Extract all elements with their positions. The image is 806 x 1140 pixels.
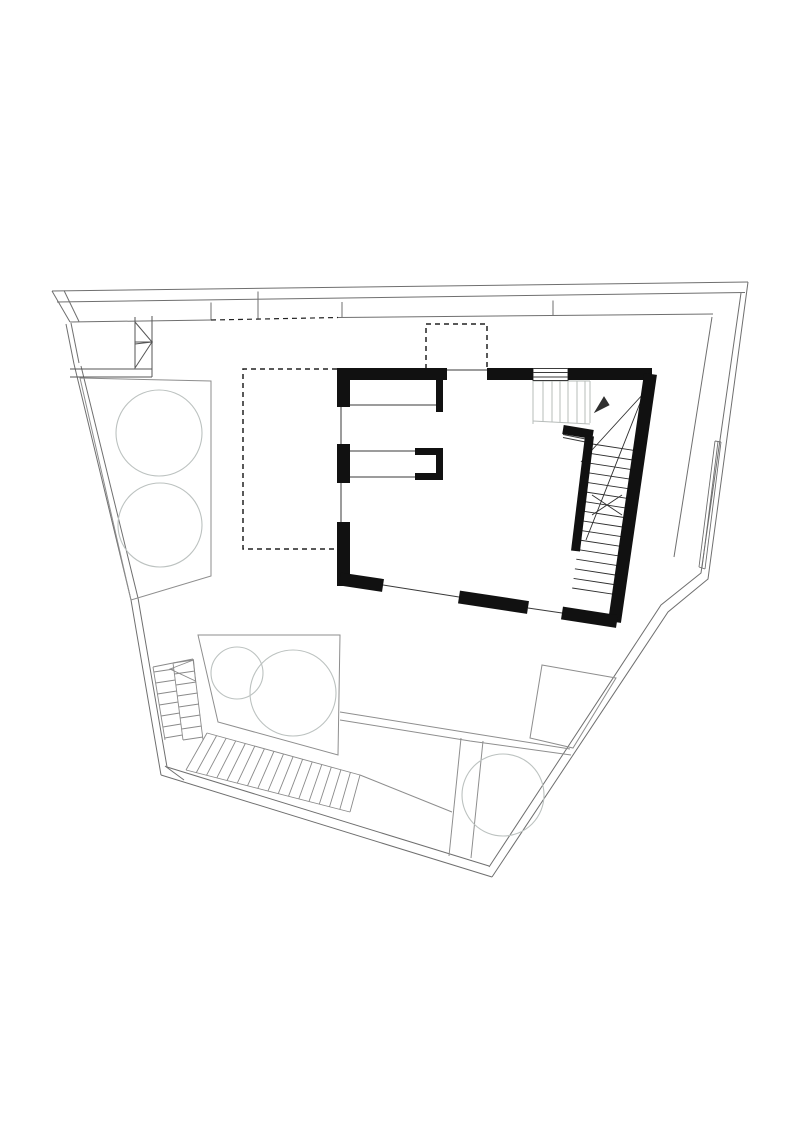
stair-direction-arrowhead xyxy=(595,397,609,412)
garden-path-edge-upper xyxy=(340,712,570,749)
canopy-outline-west xyxy=(243,369,337,549)
street-wall-cap-inner xyxy=(64,291,79,322)
exterior-stairs-9 xyxy=(159,702,178,705)
garden-path-edge-lower xyxy=(340,720,571,755)
south-window-sill-2 xyxy=(528,608,562,613)
south-window-sill-1 xyxy=(383,585,459,597)
exterior-stairs-39 xyxy=(340,772,351,809)
garden-stair-cap-left xyxy=(186,733,207,770)
canopy-outline-north xyxy=(426,324,487,369)
building-thin-lines xyxy=(341,368,593,613)
stair-main-flight-8 xyxy=(582,521,623,527)
street-wall-bottom-west xyxy=(70,320,211,322)
upper-garden-stair-cap-1 xyxy=(153,663,173,667)
south-wall-east xyxy=(562,613,617,622)
balcony-railing-2 xyxy=(705,442,721,569)
stair-main-flight-3 xyxy=(588,473,629,479)
dashed-outlines xyxy=(211,318,487,550)
exterior-stairs xyxy=(153,659,360,812)
exterior-stairs-17 xyxy=(179,704,199,707)
stair-main-flight-13 xyxy=(575,569,615,575)
south-wall-west xyxy=(340,579,383,586)
east-boundary-fence xyxy=(674,317,712,557)
exterior-stairs-11 xyxy=(163,724,181,727)
stair-main-flight-10 xyxy=(579,540,620,546)
exterior-stairs-28 xyxy=(227,744,245,781)
exterior-stairs-7 xyxy=(156,680,176,683)
tree-canopy-2 xyxy=(118,483,202,567)
gate-arrow-lower xyxy=(135,342,152,368)
terrace-pad xyxy=(530,665,616,748)
street-wall-inner xyxy=(57,293,745,303)
tree-canopy-1 xyxy=(116,390,202,476)
upper-flight-bottom xyxy=(533,421,590,424)
garage-pad xyxy=(80,378,211,600)
page xyxy=(0,0,806,1140)
exterior-stairs-37 xyxy=(319,767,331,804)
entrance-gate xyxy=(70,316,152,377)
south-wall-mid xyxy=(459,597,528,608)
exterior-stairs-15 xyxy=(176,682,196,685)
west-boundary-outer xyxy=(74,364,161,775)
stair-main-flight-12 xyxy=(576,559,616,565)
tree-canopy-5 xyxy=(462,754,544,836)
walkway-strip-left xyxy=(449,738,461,856)
gate-arrow-upper xyxy=(135,322,152,342)
exterior-stairs-26 xyxy=(207,738,227,775)
south-boundary-inner xyxy=(167,767,489,866)
exterior-stairs-19 xyxy=(182,726,202,729)
stair-main-flight-15 xyxy=(572,588,612,594)
stair-enclosure-wall xyxy=(576,436,590,551)
stair-main-flight-9 xyxy=(580,530,621,536)
floor-plan-svg xyxy=(0,0,806,1140)
stair-main-flight-2 xyxy=(590,463,632,469)
southwest-corner-wedge xyxy=(165,766,184,780)
stair-main-flight-0 xyxy=(592,444,634,450)
stair-main-flight-11 xyxy=(578,550,619,556)
stair-main-flight-5 xyxy=(586,492,627,498)
exterior-stairs-34 xyxy=(289,759,303,796)
exterior-stairs-16 xyxy=(177,693,197,696)
exterior-stairs-36 xyxy=(309,765,322,802)
exterior-stairs-29 xyxy=(237,746,255,783)
stair-main-flight-6 xyxy=(584,502,625,508)
stair-landing-wall xyxy=(563,430,593,435)
exterior-stairs-27 xyxy=(217,741,236,778)
exterior-stairs-6 xyxy=(154,669,174,672)
exterior-stairs-12 xyxy=(165,735,183,738)
balcony-railing-1 xyxy=(702,442,718,569)
garden-stair-cap-right xyxy=(350,775,360,812)
walkway-strip-right xyxy=(471,741,483,858)
street-wall-outer xyxy=(52,282,748,291)
exterior-stairs-30 xyxy=(248,749,265,786)
exterior-stairs-38 xyxy=(330,770,341,807)
exterior-stairs-18 xyxy=(180,715,200,718)
exterior-stairs-10 xyxy=(161,713,180,716)
stair-main-flight-14 xyxy=(574,578,614,584)
upper-garden-stair-border-left xyxy=(153,667,165,740)
south-boundary-outer xyxy=(161,775,492,877)
exterior-stairs-25 xyxy=(196,736,216,773)
street-wall-bottom-east xyxy=(338,314,713,318)
street-wall-cap-outer xyxy=(52,291,70,322)
stair-main-flight-1 xyxy=(591,454,633,460)
exterior-stairs-8 xyxy=(157,691,176,694)
stair-edge-extension xyxy=(360,775,452,812)
tree-canopy-4 xyxy=(250,650,336,736)
exterior-stairs-20 xyxy=(183,737,203,740)
stair-upper-flight xyxy=(533,381,590,424)
street-wall-dashed-segment xyxy=(211,318,338,321)
patio-pad xyxy=(198,635,340,755)
exterior-stairs-35 xyxy=(299,762,312,799)
east-wall xyxy=(615,374,651,622)
